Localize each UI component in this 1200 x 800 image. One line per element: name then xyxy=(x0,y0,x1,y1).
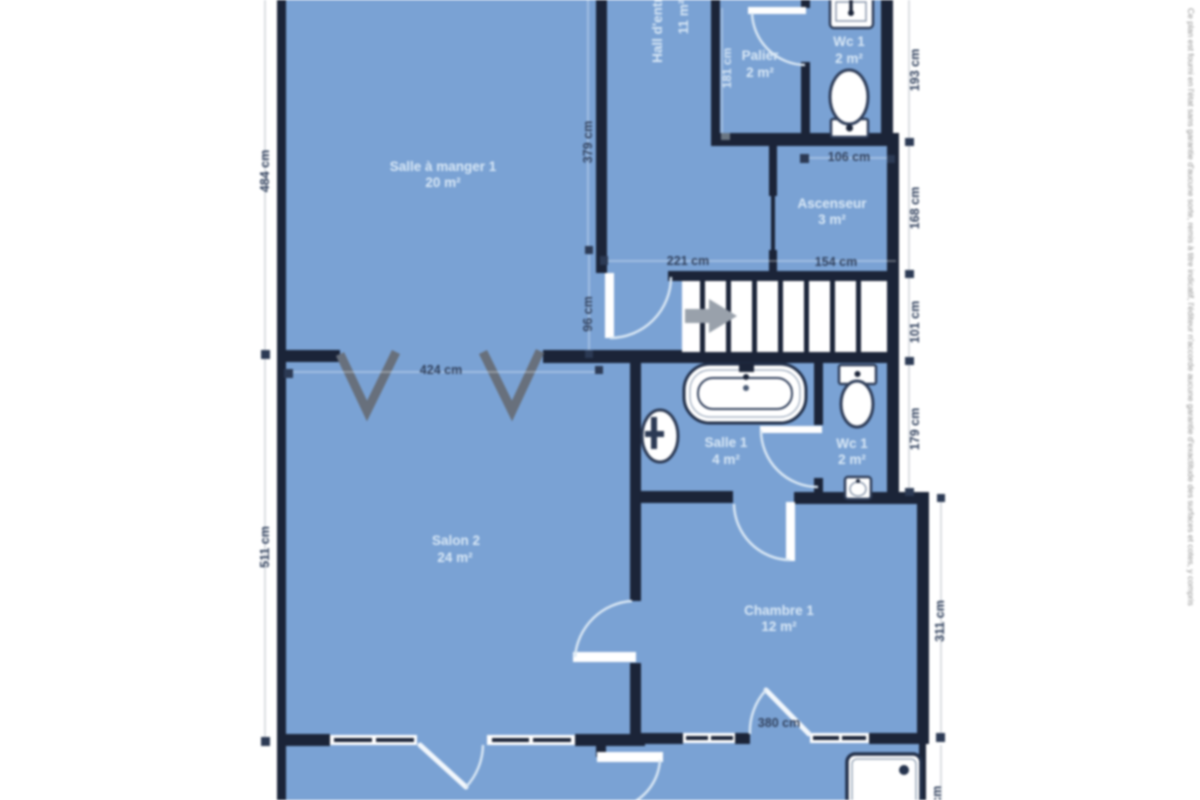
svg-text:Salon 2: Salon 2 xyxy=(432,533,480,548)
svg-text:Salle 1: Salle 1 xyxy=(705,435,748,450)
svg-text:380 cm: 380 cm xyxy=(758,716,800,730)
svg-text:4 m²: 4 m² xyxy=(712,452,740,467)
svg-text:11 m²: 11 m² xyxy=(676,0,691,34)
svg-text:154 cm: 154 cm xyxy=(815,255,857,269)
svg-text:Palier: Palier xyxy=(742,48,780,63)
svg-text:379 cm: 379 cm xyxy=(581,121,595,163)
svg-text:Hall d'entrée 1: Hall d'entrée 1 xyxy=(650,0,665,63)
svg-text:24 m²: 24 m² xyxy=(437,550,473,565)
svg-text:181 cm: 181 cm xyxy=(720,48,734,89)
svg-text:2 m²: 2 m² xyxy=(835,51,863,66)
svg-text:Wc 1: Wc 1 xyxy=(833,34,865,49)
svg-text:Ce plan est fourni en l'état s: Ce plan est fourni en l'état sans garant… xyxy=(1186,8,1196,606)
svg-text:221 cm: 221 cm xyxy=(667,254,709,268)
svg-text:179 cm: 179 cm xyxy=(908,408,922,450)
svg-text:484 cm: 484 cm xyxy=(258,150,272,192)
svg-text:5 cm: 5 cm xyxy=(930,786,944,800)
svg-text:101 cm: 101 cm xyxy=(908,301,922,343)
svg-text:Chambre 1: Chambre 1 xyxy=(744,603,814,618)
svg-text:Salle à manger 1: Salle à manger 1 xyxy=(390,159,497,174)
svg-text:12 m²: 12 m² xyxy=(761,619,797,634)
svg-text:2 m²: 2 m² xyxy=(746,65,774,80)
svg-text:3 m²: 3 m² xyxy=(818,212,846,227)
svg-text:106 cm: 106 cm xyxy=(828,150,870,164)
svg-text:96 cm: 96 cm xyxy=(581,296,595,331)
svg-text:168 cm: 168 cm xyxy=(908,187,922,229)
svg-text:20 m²: 20 m² xyxy=(425,175,461,190)
svg-text:2 m²: 2 m² xyxy=(838,452,866,467)
svg-text:193 cm: 193 cm xyxy=(908,49,922,91)
svg-text:511 cm: 511 cm xyxy=(258,526,272,568)
svg-text:424 cm: 424 cm xyxy=(420,363,462,377)
svg-text:Ascenseur: Ascenseur xyxy=(797,196,867,211)
svg-text:Wc 1: Wc 1 xyxy=(836,436,868,451)
svg-text:311 cm: 311 cm xyxy=(933,600,947,642)
